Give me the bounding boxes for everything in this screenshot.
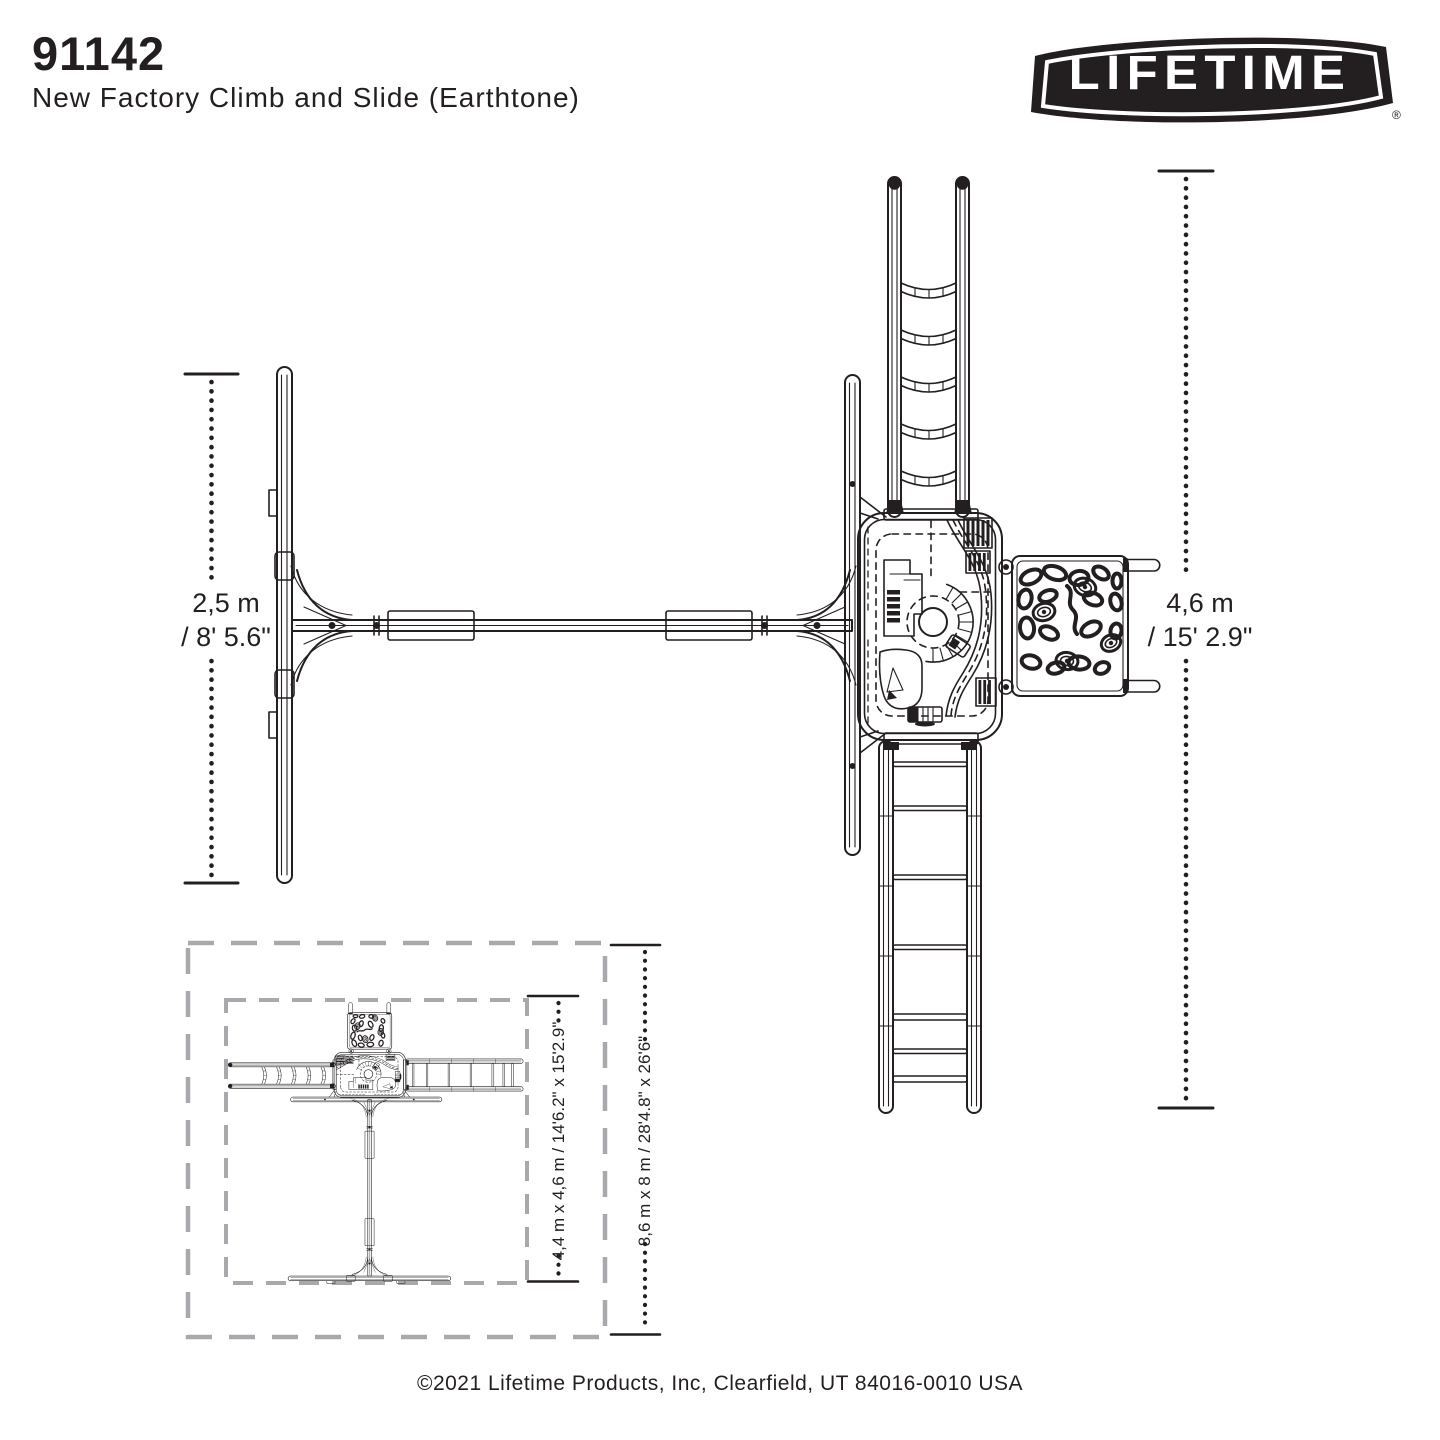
spec-sheet-page: 91142 New Factory Climb and Slide (Earth… <box>0 0 1440 1440</box>
registered-trademark: ® <box>1392 108 1401 122</box>
swing-width-imperial: / 8' 5.6" <box>136 620 316 654</box>
overall-depth-label: 4,6 m / 15' 2.9" <box>1110 586 1290 654</box>
overall-depth-metric: 4,6 m <box>1110 586 1290 620</box>
product-name: New Factory Climb and Slide (Earthtone) <box>32 82 580 114</box>
copyright-line: ©2021 Lifetime Products, Inc, Clearfield… <box>0 1372 1440 1396</box>
swing-width-label: 2,5 m / 8' 5.6" <box>136 586 316 654</box>
overall-depth-imperial: / 15' 2.9" <box>1110 620 1290 654</box>
safety-zone-label: 8,6 m x 8 m / 28'4.8" x 26'6" <box>635 1036 655 1246</box>
model-number: 91142 <box>32 26 165 81</box>
lifetime-logo-text: LIFETIME <box>1011 28 1410 118</box>
plan-drawing <box>0 0 1440 1440</box>
lifetime-logo: LIFETIME ® <box>1022 28 1398 124</box>
swing-width-metric: 2,5 m <box>136 586 316 620</box>
footprint-diagram <box>188 943 660 1337</box>
unit-footprint-label: 4,4 m x 4,6 m / 14'6.2" x 15'2.9" <box>549 1022 569 1261</box>
main-top-view <box>269 177 1160 1113</box>
footprint-top-view <box>228 1003 523 1284</box>
